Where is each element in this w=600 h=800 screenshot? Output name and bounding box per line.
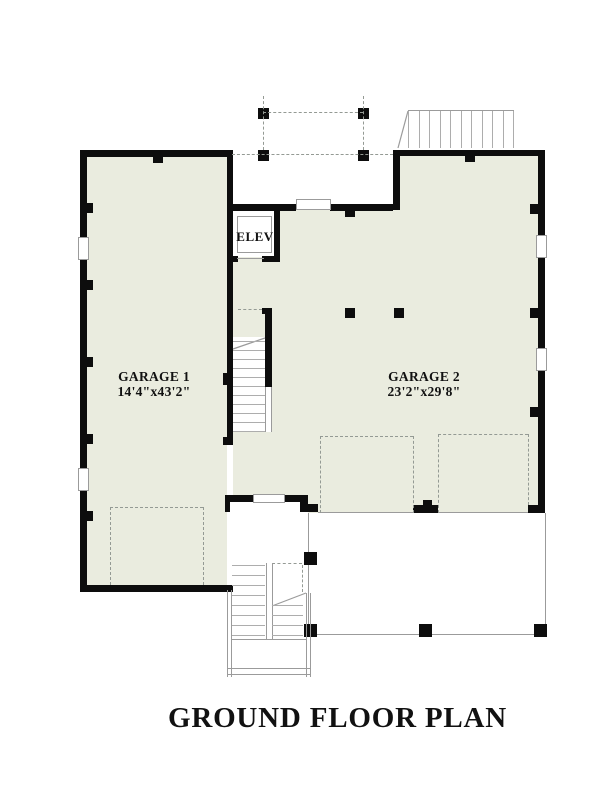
garage1-dimensions: 14'4"x43'2" xyxy=(84,384,224,399)
garage1-name: GARAGE 1 xyxy=(84,369,224,384)
garage1-label: GARAGE 1 14'4"x43'2" xyxy=(84,369,224,399)
stair-tread xyxy=(272,635,303,636)
carport-roof-dash xyxy=(363,96,364,150)
carport-roof-dash xyxy=(263,96,264,150)
stair-tread xyxy=(232,595,265,596)
stair-tread xyxy=(232,605,265,606)
wall-step-horizontal xyxy=(300,504,318,512)
stair-tread xyxy=(232,585,265,586)
stair-tread xyxy=(232,615,265,616)
stair-tread xyxy=(461,111,462,148)
wall-hall-top xyxy=(330,204,393,211)
garage-door-dash xyxy=(320,436,413,437)
elevator-door-line xyxy=(237,258,264,259)
carport-column xyxy=(258,150,269,161)
floor-plan-sheet: GARAGE 1 14'4"x43'2" GARAGE 2 23'2"x29'8… xyxy=(0,0,600,800)
wall-stud-tick xyxy=(86,280,93,290)
window xyxy=(78,237,89,260)
stair-rail-line xyxy=(227,590,228,677)
elevator-label: ELEV xyxy=(227,229,283,245)
interior-post xyxy=(345,308,355,318)
garage-door-dash xyxy=(413,436,414,513)
stair-break-line xyxy=(398,111,408,148)
garage-door-dash xyxy=(438,434,439,513)
garage2-floor xyxy=(400,156,538,513)
window xyxy=(536,235,547,258)
wall-stair-right xyxy=(265,308,272,387)
deck-edge-line xyxy=(308,513,309,634)
garage-door-post xyxy=(413,505,438,513)
stair-tread xyxy=(232,625,265,626)
stair-tread xyxy=(233,386,265,387)
stair-landing-line xyxy=(227,668,311,669)
stair-tread xyxy=(233,341,265,342)
wall-garage2-right xyxy=(538,150,545,513)
stair-tread xyxy=(513,111,514,148)
wall-hall-top xyxy=(280,204,296,211)
stair-tread xyxy=(492,111,493,148)
stair-tread xyxy=(233,377,265,378)
interior-post xyxy=(394,308,404,318)
stair-tread xyxy=(272,605,303,606)
stair-tread xyxy=(232,565,265,566)
garage2-name: GARAGE 2 xyxy=(354,369,494,384)
garage-door-dash xyxy=(110,507,111,585)
stair-tread xyxy=(233,350,265,351)
stair-stringer-line xyxy=(272,563,273,640)
deck-post xyxy=(534,624,547,637)
stair-stringer-line xyxy=(266,563,267,640)
stair-tread xyxy=(233,431,265,432)
stair-landing-line xyxy=(232,639,307,640)
wall-garage2-bottom-corner xyxy=(528,505,545,513)
deck-post xyxy=(419,624,432,637)
entry-window xyxy=(296,199,331,210)
stair-rail-line xyxy=(306,593,307,677)
garage-door-dash xyxy=(203,507,204,585)
stair-tread xyxy=(503,111,504,148)
stair-tread xyxy=(272,615,303,616)
garage-door-dash xyxy=(438,434,528,435)
stair-tread xyxy=(429,111,430,148)
stair-tread xyxy=(232,575,265,576)
wall-end-cap xyxy=(223,437,233,445)
wall-stud-tick xyxy=(86,434,93,444)
stair-tread xyxy=(482,111,483,148)
garage2-label: GARAGE 2 23'2"x29'8" xyxy=(354,369,494,399)
wall-elevator-bottom-right xyxy=(262,256,280,262)
stair-tread xyxy=(233,368,265,369)
wall-garage1-bottom xyxy=(80,585,233,592)
plan-title: GROUND FLOOR PLAN xyxy=(150,702,525,735)
garage2-dimensions: 23'2"x29'8" xyxy=(354,384,494,399)
stair-tread xyxy=(233,404,265,405)
wall-stud-tick xyxy=(86,357,93,367)
wall-stud-tick xyxy=(530,204,538,214)
stair-rail-line xyxy=(310,593,311,677)
garage-door-dash xyxy=(528,434,529,505)
stair-landing-dash xyxy=(302,565,303,592)
wall-stud-tick xyxy=(530,407,538,417)
stair-tread xyxy=(471,111,472,148)
stair-tread xyxy=(408,111,409,148)
wall-stud-tick xyxy=(465,156,475,162)
stair-tread xyxy=(450,111,451,148)
wall-stud-tick xyxy=(223,373,233,385)
wall-garage1-right xyxy=(227,150,233,445)
stair-tread xyxy=(272,625,303,626)
rear-door-opening xyxy=(253,494,285,503)
garage-door-dash xyxy=(110,507,203,508)
wall-stud-tick xyxy=(153,157,163,163)
stair-landing-line xyxy=(227,674,311,675)
garage-door-post xyxy=(423,500,432,505)
wall-elevator-top xyxy=(227,204,280,211)
window xyxy=(536,348,547,371)
stair-tread xyxy=(419,111,420,148)
wall-garage1-top xyxy=(80,150,232,157)
stair-tread xyxy=(233,395,265,396)
stair-landing-dash xyxy=(272,563,302,564)
stair-rail-line xyxy=(271,387,272,432)
wall-garage2-left xyxy=(393,150,400,210)
stair-tread xyxy=(233,422,265,423)
wall-stud-tick xyxy=(86,511,93,521)
stair-tread xyxy=(232,635,265,636)
stair-tread xyxy=(233,413,265,414)
stair-opening-dash xyxy=(238,309,262,310)
window xyxy=(78,468,89,491)
wall-stud-tick xyxy=(345,211,355,217)
wall-stud-tick xyxy=(530,308,538,318)
wall-hall-bottom xyxy=(228,495,253,502)
carport-column xyxy=(358,150,369,161)
wall-stud-tick xyxy=(86,203,93,213)
garage-door-dash xyxy=(320,436,321,513)
stair-tread xyxy=(233,359,265,360)
stair-rail-line xyxy=(265,387,266,432)
wall-elevator-bottom-left xyxy=(227,256,238,262)
stair-rail-line xyxy=(231,590,232,677)
carport-roof-dash xyxy=(263,112,363,113)
carport-roof-dash xyxy=(232,154,393,155)
stair-tread xyxy=(440,111,441,148)
deck-post xyxy=(304,552,317,565)
deck-edge-line xyxy=(545,513,546,634)
